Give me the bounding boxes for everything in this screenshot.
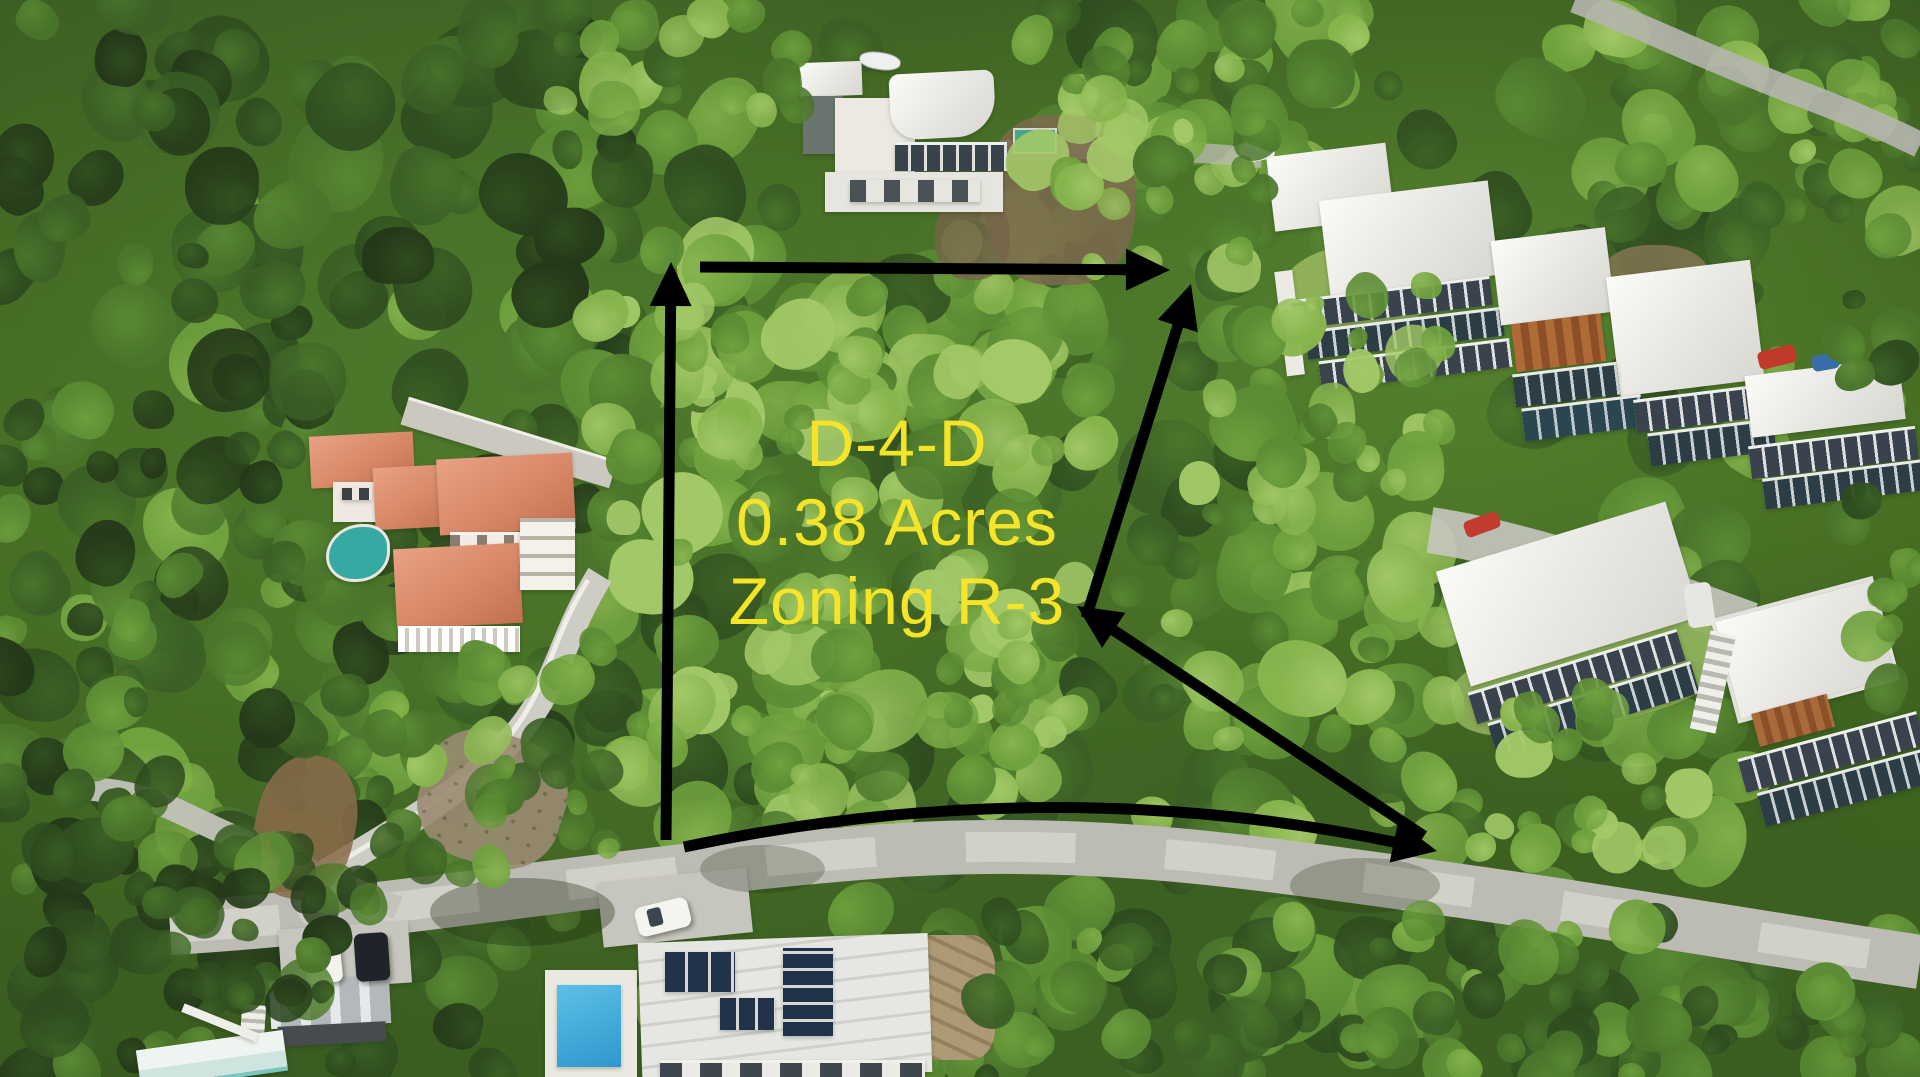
- tree-canopy: [931, 647, 969, 688]
- tree-canopy: [541, 84, 580, 118]
- parcel-zoning-label: Zoning R-3: [597, 562, 1197, 641]
- tree-canopy: [708, 311, 751, 356]
- tree-canopy: [587, 80, 641, 137]
- tree-canopy: [1358, 1017, 1405, 1063]
- tree-canopy: [1641, 826, 1686, 871]
- tree-canopy: [230, 917, 261, 944]
- tree-canopy: [1169, 1014, 1216, 1065]
- tree-canopy: [1023, 1027, 1057, 1058]
- tree-canopy: [1841, 482, 1883, 521]
- tree-shadow-on-road: [430, 878, 615, 946]
- tree-canopy: [193, 610, 281, 698]
- tree-canopy: [1419, 673, 1467, 728]
- tree-canopy: [726, 701, 766, 741]
- parcel-area-label: 0.38 Acres: [597, 483, 1197, 562]
- tree-canopy: [1664, 767, 1715, 819]
- tree-canopy: [68, 512, 145, 594]
- tree-canopy: [260, 539, 307, 585]
- tree-canopy: [1077, 248, 1111, 284]
- tree-canopy: [0, 391, 52, 448]
- tree-canopy: [1168, 63, 1205, 100]
- tree-canopy: [1439, 1043, 1488, 1077]
- tree-canopy: [1209, 49, 1249, 89]
- tree-canopy: [132, 388, 175, 430]
- tree-canopy: [1201, 377, 1240, 419]
- parcel-id-label: D-4-D: [597, 404, 1197, 483]
- tree-canopy: [953, 967, 1022, 1039]
- aerial-photo: D-4-D 0.38 Acres Zoning R-3: [0, 0, 1920, 1077]
- tree-canopy: [1620, 751, 1658, 786]
- tree-canopy: [596, 836, 621, 861]
- tree-canopy: [1857, 657, 1916, 720]
- tree-canopy: [105, 607, 163, 666]
- tree-shadow-on-road-2: [700, 845, 825, 893]
- tree-canopy: [139, 448, 165, 480]
- tree-canopy: [1834, 1027, 1870, 1062]
- tree-canopy: [0, 441, 32, 490]
- tree-canopy: [11, 814, 86, 892]
- tree-canopy: [1625, 996, 1692, 1052]
- tree-canopy: [0, 489, 36, 548]
- tree-canopy: [402, 836, 450, 886]
- tree-canopy: [1336, 265, 1399, 327]
- tree-canopy: [1093, 1000, 1161, 1069]
- tree-canopy: [974, 891, 1031, 952]
- tree-canopy: [1125, 239, 1168, 280]
- tree-canopy: [969, 326, 1062, 415]
- tree-canopy: [44, 372, 122, 447]
- tree-canopy: [1411, 271, 1443, 299]
- tree-canopy: [1841, 288, 1866, 311]
- parcel-annotation: D-4-D 0.38 Acres Zoning R-3: [597, 404, 1197, 641]
- tree-canopy: [1770, 1010, 1814, 1055]
- tree-canopy: [971, 1061, 1004, 1077]
- tree-canopy: [806, 683, 882, 760]
